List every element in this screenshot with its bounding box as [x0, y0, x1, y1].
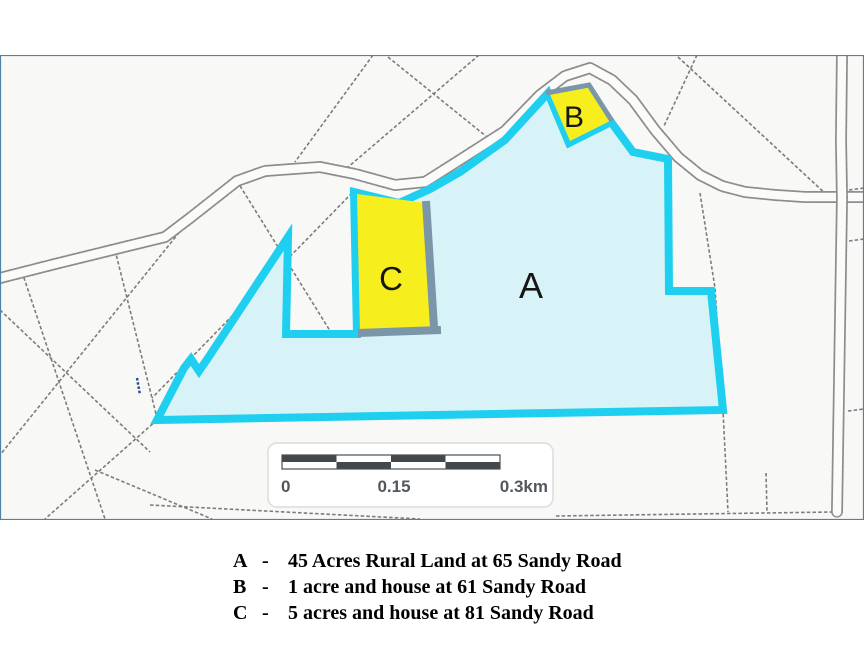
legend-key: B: [233, 574, 262, 600]
side-road-surface: [837, 55, 842, 512]
scale-bar-checker: [282, 455, 500, 469]
legend-description: 45 Acres Rural Land at 65 Sandy Road: [288, 548, 622, 574]
legend-row-c: C - 5 acres and house at 81 Sandy Road: [233, 600, 622, 626]
scale-tick-end: 0.3km: [500, 477, 548, 496]
legend-row-b: B - 1 acre and house at 61 Sandy Road: [233, 574, 622, 600]
parcel-c-label: C: [379, 260, 403, 297]
legend-key: C: [233, 600, 262, 626]
legend-description: 5 acres and house at 81 Sandy Road: [288, 600, 594, 626]
legend: A - 45 Acres Rural Land at 65 Sandy Road…: [233, 548, 622, 626]
legend-separator: -: [262, 600, 288, 626]
scale-tick-start: 0: [281, 477, 290, 496]
scale-bar-box: [268, 443, 553, 507]
legend-separator: -: [262, 548, 288, 574]
scale-bar: 0 0.15 0.3km: [268, 443, 553, 507]
map-canvas[interactable]: A B C 0 0.15 0.3km: [0, 55, 864, 520]
page: { "map": { "parcel_labels": { "a": "A", …: [0, 0, 864, 648]
scale-tick-mid: 0.15: [377, 477, 410, 496]
legend-separator: -: [262, 574, 288, 600]
legend-row-a: A - 45 Acres Rural Land at 65 Sandy Road: [233, 548, 622, 574]
legend-key: A: [233, 548, 262, 574]
parcel-a-label: A: [519, 265, 543, 306]
parcel-b-label: B: [564, 101, 584, 134]
legend-description: 1 acre and house at 61 Sandy Road: [288, 574, 586, 600]
